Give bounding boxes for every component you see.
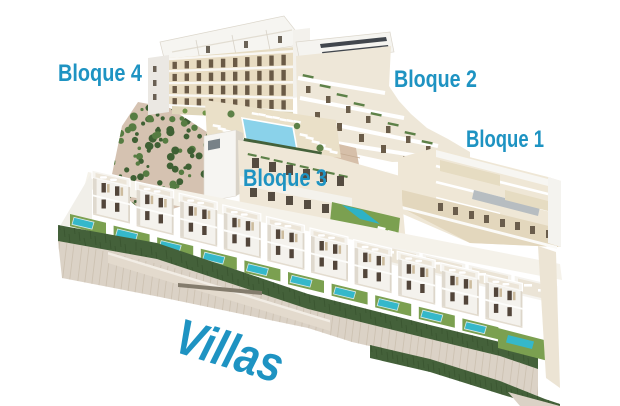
svg-text:Bloque 2: Bloque 2 [394,66,477,93]
svg-text:Bloque 1: Bloque 1 [466,126,544,153]
svg-text:Bloque 3: Bloque 3 [243,165,327,192]
svg-text:Bloque 4: Bloque 4 [58,60,142,87]
